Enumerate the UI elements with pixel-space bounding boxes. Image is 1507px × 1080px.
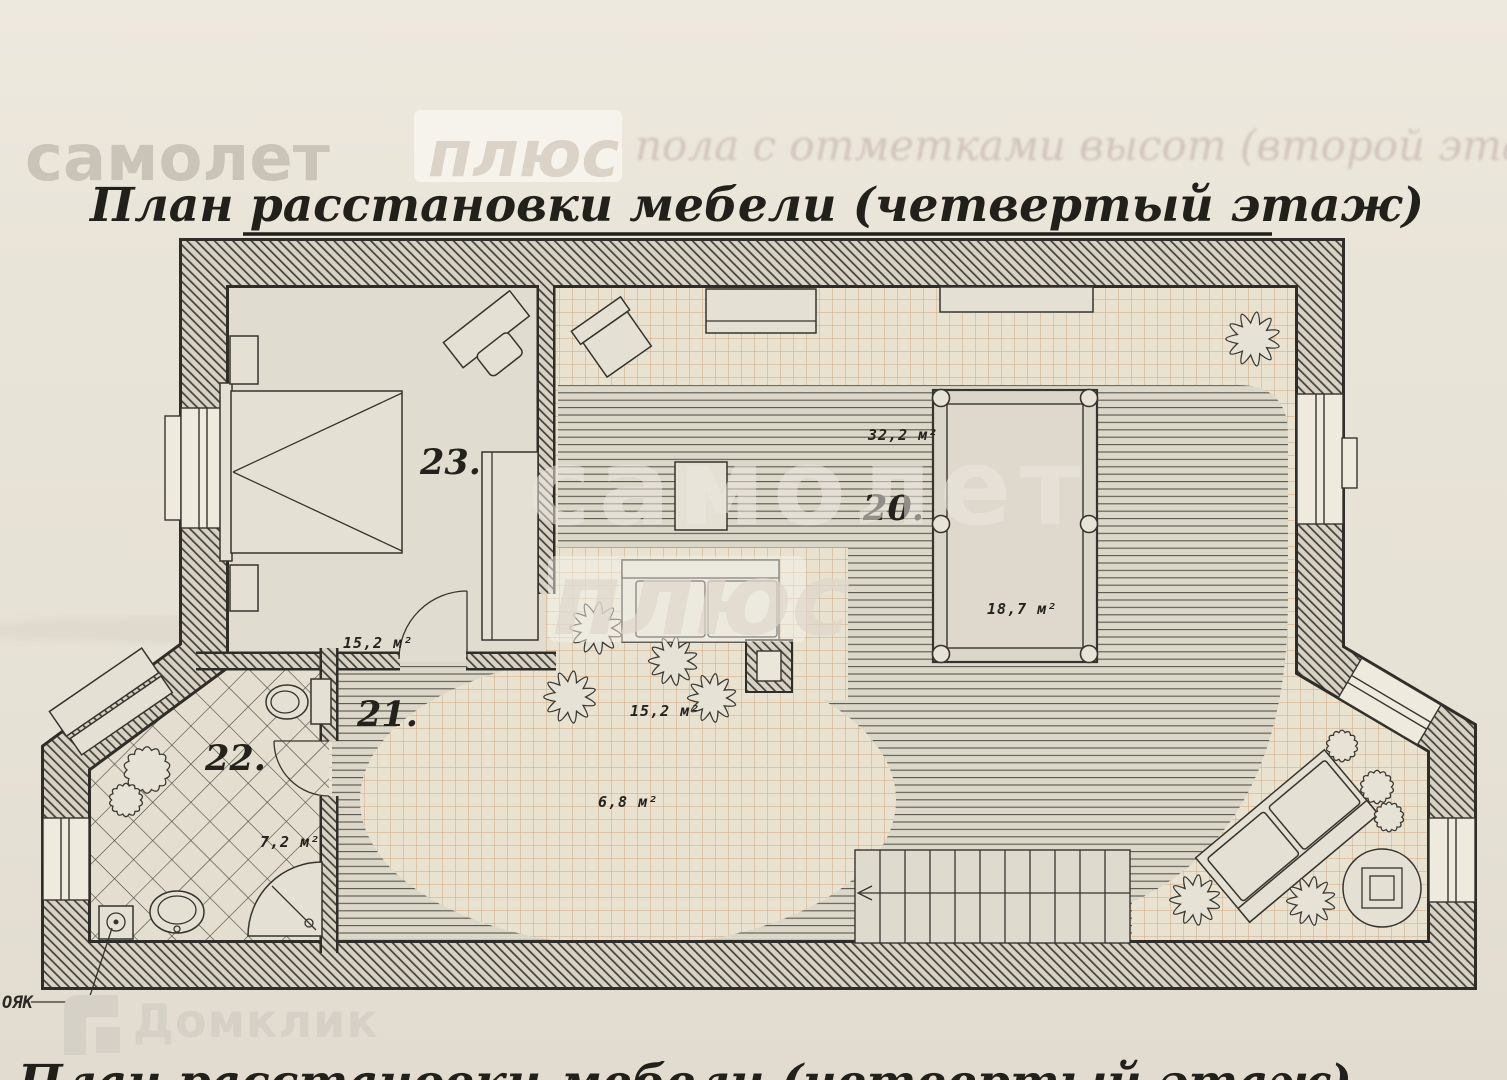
scanned-floor-plan-page: самолет плюс пола с отметками высот (вто… [0,0,1507,1080]
round-side-table [1343,849,1421,927]
wall-shelf [940,287,1093,312]
room-22-area: 7,2 м² [260,833,320,851]
plant-bush [110,783,143,816]
plant-bush [1327,730,1358,762]
bed-headboard [220,383,232,561]
page-title-text: План расстановки мебели (четвертый этаж) [88,178,1424,233]
room-23-number: 23. [419,442,481,483]
nightstand [230,565,258,611]
bed [231,391,402,553]
floor-plan-drawing: самолет плюс пола с отметками высот (вто… [0,0,1507,1080]
bathroom-window [43,818,89,900]
plant-bush [1361,770,1394,803]
room-23-area: 15,2 м² [343,634,413,652]
watermark-plus-center: плюс [552,541,851,658]
sink [150,891,204,933]
staircase [855,850,1130,943]
domclick-wordmark: Домклик [133,994,379,1048]
bedroom-window [165,408,227,528]
room-21-lounge-area: 15,2 м² [630,702,700,720]
living-window-right-lower [1429,818,1475,902]
room-22-number: 22. [204,738,266,779]
washing-machine [99,906,133,939]
wall-cabinet [706,289,816,333]
room-21-center-area: 6,8 м² [598,793,658,811]
watermark-samolet-center: самолет [528,426,1089,549]
plant-bush [1374,802,1403,832]
nightstand [230,336,258,384]
room-20-billiard-area: 18,7 м² [987,600,1057,618]
page-title: План расстановки мебели (четвертый этаж) [88,178,1424,234]
showthrough-text: пола с отметками высот (второй эта [635,121,1507,170]
next-page-title-partial: План расстановки мебели (четвертый этаж) [16,1055,1352,1080]
riser-label: ОЯК [2,993,34,1013]
room-21-number: 21. [356,694,418,735]
